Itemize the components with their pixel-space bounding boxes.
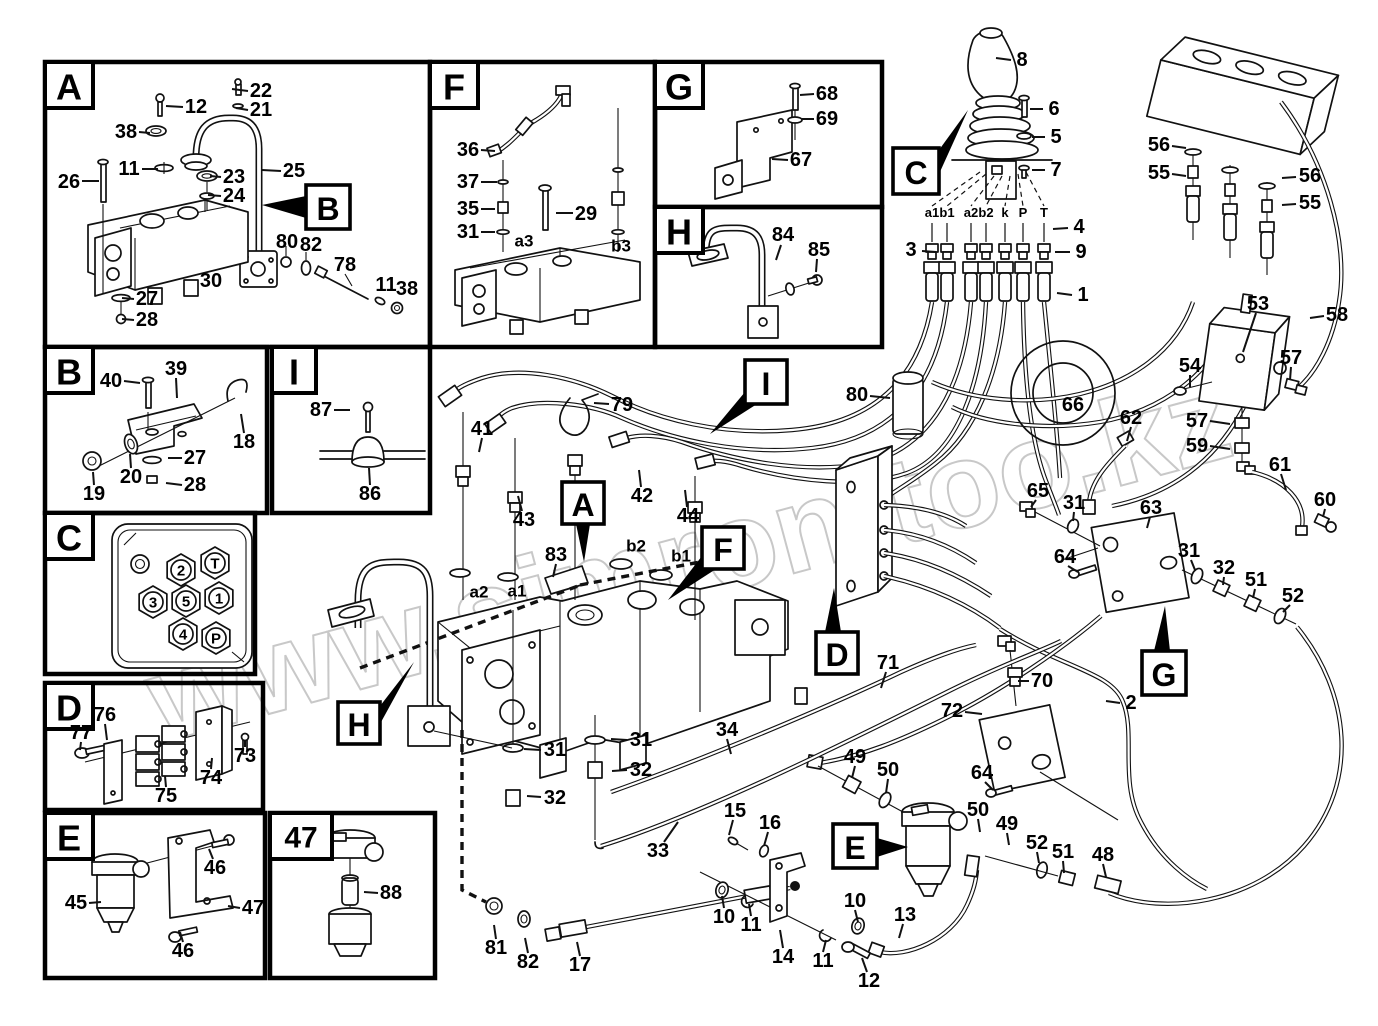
callout-arrow-G	[1154, 606, 1170, 651]
part-label-12: 12	[858, 970, 880, 992]
part-label-45: 45	[65, 892, 87, 914]
leader-line	[139, 132, 150, 133]
port-fitting	[980, 244, 992, 252]
joystick-port-label-b1: b1	[939, 205, 954, 220]
part-label-13: 13	[894, 904, 916, 926]
part-label-4: 4	[1073, 216, 1085, 238]
part-label-b2: b2	[626, 537, 646, 556]
part-label-41: 41	[471, 418, 493, 440]
part-label-b1: b1	[671, 547, 691, 566]
part-label-3: 3	[905, 239, 916, 261]
port-fitting	[1040, 252, 1048, 259]
part-label-47: 47	[242, 897, 264, 919]
part-label-40: 40	[100, 370, 122, 392]
part-label-7: 7	[1050, 159, 1061, 181]
callout-letter-I: I	[762, 366, 771, 402]
leader-line	[232, 89, 248, 91]
port-fitting	[1019, 252, 1027, 259]
part-label-24: 24	[223, 185, 246, 207]
callout-arrow-E	[877, 838, 908, 857]
part-label-37: 37	[457, 171, 479, 193]
part-label-27: 27	[184, 447, 206, 469]
part-label-60: 60	[1314, 489, 1336, 511]
leader-line	[776, 245, 781, 260]
leader-line	[729, 820, 733, 835]
part-label-b3: b3	[611, 237, 631, 256]
leader-line	[764, 832, 768, 846]
callout-letter-G: G	[1152, 657, 1177, 693]
panel-letter-H: H	[666, 212, 692, 253]
parts-diagram-page: www.simron-too.kz	[0, 0, 1378, 1026]
part-label-82: 82	[517, 951, 539, 973]
leader-line	[236, 108, 248, 110]
part-label-87: 87	[310, 399, 332, 421]
leader-line	[481, 150, 495, 151]
leader-line	[594, 403, 609, 404]
part-label-62: 62	[1120, 407, 1142, 429]
port-fitting	[1001, 252, 1009, 259]
hose-ferrule	[978, 262, 994, 273]
part-label-82: 82	[300, 234, 322, 256]
part-label-12: 12	[185, 96, 207, 118]
part-label-31: 31	[544, 739, 566, 761]
panel-letter-47: 47	[284, 822, 317, 855]
joystick-port-label-a1: a1	[925, 205, 939, 220]
part-label-8: 8	[1016, 49, 1027, 71]
leader-line	[124, 381, 140, 383]
part-label-68: 68	[816, 83, 838, 105]
callout-arrow-C	[939, 110, 968, 174]
panel-letter-I: I	[289, 352, 299, 393]
part-label-50: 50	[877, 759, 899, 781]
part-label-32: 32	[630, 759, 652, 781]
top-right-fittings-art	[1185, 149, 1275, 275]
panel-letter-A: A	[56, 67, 82, 108]
part-label-26: 26	[58, 171, 80, 193]
part-label-11: 11	[375, 274, 396, 296]
part-label-57: 57	[1280, 347, 1302, 369]
hose-ferrule	[963, 262, 979, 273]
top-right-block-art	[1147, 33, 1339, 159]
port-fitting	[982, 252, 990, 259]
leader-line	[922, 251, 936, 252]
leader-line	[899, 924, 903, 938]
panel-letter-G: G	[665, 67, 693, 108]
callout-letter-F: F	[713, 532, 733, 568]
part-label-34: 34	[716, 719, 739, 741]
panel-letter-C: C	[56, 518, 82, 559]
port-fitting	[1038, 244, 1050, 252]
leader-line	[208, 195, 221, 196]
callout-letter-E: E	[844, 830, 865, 866]
part-label-55: 55	[1148, 162, 1170, 184]
panel-letter-E: E	[57, 818, 81, 859]
hose-ferrule	[1038, 273, 1050, 301]
port-fitting	[965, 244, 977, 252]
c-panel-port-label-1: 1	[215, 591, 223, 608]
part-label-50: 50	[967, 799, 989, 821]
part-label-a2: a2	[470, 583, 489, 602]
part-label-27: 27	[136, 288, 158, 310]
leader-line	[524, 749, 541, 750]
leader-line	[965, 712, 982, 714]
part-label-17: 17	[569, 954, 591, 976]
part-label-85: 85	[808, 239, 830, 261]
joystick-port-label-P: P	[1019, 205, 1028, 220]
leader-line	[772, 159, 788, 160]
part-label-79: 79	[611, 394, 633, 416]
part-label-75: 75	[155, 785, 177, 807]
panel-g-art	[715, 84, 802, 200]
port-fitting	[941, 244, 953, 252]
part-label-51: 51	[1245, 569, 1267, 591]
port-fitting	[943, 252, 951, 259]
bottom-center-art	[486, 836, 870, 958]
part-label-5: 5	[1050, 126, 1061, 148]
joystick-port-label-a2: a2	[964, 205, 978, 220]
c-panel-port-label-2: 2	[177, 563, 185, 580]
callout-letter-C: C	[904, 155, 927, 191]
leader-line	[527, 796, 541, 797]
hose-ferrule	[1036, 262, 1052, 273]
leader-line	[1106, 701, 1120, 703]
part-label-33: 33	[647, 840, 669, 862]
panel-a-art	[88, 79, 403, 324]
hose-ferrule	[926, 273, 938, 301]
part-label-10: 10	[844, 890, 866, 912]
part-label-76: 76	[94, 704, 116, 726]
hose-ferrule	[939, 262, 955, 273]
part-label-a1: a1	[508, 582, 527, 601]
part-label-39: 39	[165, 358, 187, 380]
part-label-31: 31	[1063, 492, 1085, 514]
leader-line	[1282, 204, 1296, 205]
leader-line	[1172, 146, 1186, 148]
c-panel-port-label-T: T	[210, 556, 219, 573]
part-label-31: 31	[630, 729, 652, 751]
part-label-88: 88	[380, 882, 402, 904]
panel-h-art	[688, 228, 822, 338]
port-fitting	[999, 244, 1011, 252]
part-label-36: 36	[457, 139, 479, 161]
part-label-19: 19	[83, 483, 105, 505]
leader-line	[1282, 177, 1296, 178]
part-label-51: 51	[1052, 841, 1074, 863]
part-label-65: 65	[1027, 480, 1049, 502]
leader-line	[89, 902, 101, 903]
part-label-43: 43	[513, 509, 535, 531]
part-label-18: 18	[233, 431, 255, 453]
part-label-32: 32	[1213, 557, 1235, 579]
part-label-56: 56	[1148, 134, 1170, 156]
joystick-art	[932, 28, 1052, 206]
part-label-55: 55	[1299, 192, 1321, 214]
joystick-port-label-b2: b2	[978, 205, 993, 220]
c-panel-port-label-5: 5	[182, 594, 190, 611]
part-label-15: 15	[724, 800, 746, 822]
part-label-28: 28	[184, 474, 206, 496]
callout-letter-D: D	[825, 637, 848, 673]
part-label-56: 56	[1299, 165, 1321, 187]
callout-letter-A: A	[571, 487, 594, 523]
panel-letter-F: F	[443, 67, 465, 108]
part-label-6: 6	[1048, 98, 1059, 120]
hose-ferrule	[980, 273, 992, 301]
part-label-74: 74	[200, 767, 223, 789]
part-label-9: 9	[1075, 241, 1086, 263]
hose-ferrule	[1017, 273, 1029, 301]
part-label-30: 30	[200, 270, 222, 292]
leader-line	[122, 319, 134, 320]
part-label-61: 61	[1269, 454, 1291, 476]
part-label-78: 78	[334, 254, 356, 276]
leader-line	[262, 170, 281, 171]
leader-line	[479, 438, 482, 452]
part-label-11: 11	[740, 914, 761, 936]
part-label-25: 25	[283, 160, 305, 182]
port-fitting	[928, 252, 936, 259]
leader-line	[364, 892, 378, 893]
port-fitting	[967, 252, 975, 259]
part-label-63: 63	[1140, 497, 1162, 519]
callout-arrow-B	[262, 196, 306, 218]
part-label-57: 57	[1186, 410, 1208, 432]
part-label-53: 53	[1247, 293, 1269, 315]
part-label-54: 54	[1179, 355, 1202, 377]
part-label-86: 86	[359, 483, 381, 505]
part-label-46: 46	[172, 940, 194, 962]
hose-ferrule	[999, 273, 1011, 301]
part-label-69: 69	[816, 108, 838, 130]
part-label-38: 38	[115, 121, 137, 143]
joystick-port-label-k: k	[1001, 205, 1009, 220]
leader-line	[1057, 293, 1072, 295]
part-label-20: 20	[120, 466, 142, 488]
part-label-21: 21	[250, 99, 272, 121]
part-label-66: 66	[1062, 394, 1084, 416]
leader-line	[166, 106, 183, 107]
parts-diagram-canvas: www.simron-too.kz	[0, 0, 1378, 1026]
part-label-52: 52	[1026, 832, 1048, 854]
part-label-42: 42	[631, 485, 653, 507]
c-panel-port-label-P: P	[211, 631, 221, 648]
leader-line	[176, 378, 177, 398]
hose-ferrule	[997, 262, 1013, 273]
part-label-2: 2	[1125, 692, 1136, 714]
leader-line	[105, 724, 107, 740]
part-label-29: 29	[575, 203, 597, 225]
part-label-70: 70	[1031, 670, 1053, 692]
part-label-11: 11	[812, 950, 833, 972]
joystick-port-label-T: T	[1040, 205, 1048, 220]
leader-line	[612, 770, 627, 771]
part-label-71: 71	[877, 652, 899, 674]
part-label-11: 11	[118, 158, 139, 180]
hose-ferrule	[924, 262, 940, 273]
c-panel-port-label-4: 4	[179, 627, 188, 644]
leader-line	[611, 739, 627, 740]
panel-b-art	[83, 377, 247, 483]
part-label-83: 83	[545, 544, 567, 566]
part-label-46: 46	[204, 857, 226, 879]
leader-line	[1053, 228, 1068, 229]
part-label-49: 49	[844, 746, 866, 768]
part-label-80: 80	[276, 231, 298, 253]
part-label-52: 52	[1282, 585, 1304, 607]
part-label-1: 1	[1077, 284, 1088, 306]
part-label-59: 59	[1186, 435, 1208, 457]
part-label-72: 72	[941, 700, 963, 722]
part-label-14: 14	[772, 946, 795, 968]
panel-i-art	[320, 403, 425, 468]
callout-letter-B: B	[316, 191, 339, 227]
part-label-77: 77	[70, 722, 92, 744]
part-label-a3: a3	[515, 232, 534, 251]
leader-line	[122, 298, 134, 299]
callout-letter-H: H	[347, 707, 370, 743]
leader-line	[210, 176, 221, 177]
part-label-81: 81	[485, 937, 507, 959]
cap-80-art	[893, 372, 923, 439]
part-label-16: 16	[759, 812, 781, 834]
part-label-31: 31	[457, 221, 479, 243]
c-panel-port-label-3: 3	[149, 595, 157, 612]
part-label-80: 80	[846, 384, 868, 406]
part-label-67: 67	[790, 149, 812, 171]
part-label-32: 32	[544, 787, 566, 809]
panel-letter-B: B	[56, 352, 82, 393]
hose-ferrule	[941, 273, 953, 301]
part-label-35: 35	[457, 198, 479, 220]
part-label-10: 10	[713, 906, 735, 928]
leader-line	[166, 483, 182, 485]
part-label-48: 48	[1092, 844, 1114, 866]
part-label-38: 38	[396, 278, 418, 300]
part-label-49: 49	[996, 813, 1018, 835]
part-label-28: 28	[136, 309, 158, 331]
panel-e-art	[92, 830, 234, 942]
part-label-31: 31	[1178, 540, 1200, 562]
leader-line	[886, 779, 888, 793]
port-fitting	[1017, 244, 1029, 252]
hose-ferrule	[1015, 262, 1031, 273]
leader-line	[800, 94, 814, 95]
part-label-84: 84	[772, 224, 795, 246]
leader-line	[1172, 174, 1186, 176]
part-label-44: 44	[677, 505, 700, 527]
part-label-64: 64	[1054, 546, 1077, 568]
hose-ferrule	[965, 273, 977, 301]
leader-line	[1310, 316, 1324, 318]
part-label-58: 58	[1326, 304, 1348, 326]
part-label-64: 64	[971, 762, 994, 784]
part-label-73: 73	[234, 745, 256, 767]
